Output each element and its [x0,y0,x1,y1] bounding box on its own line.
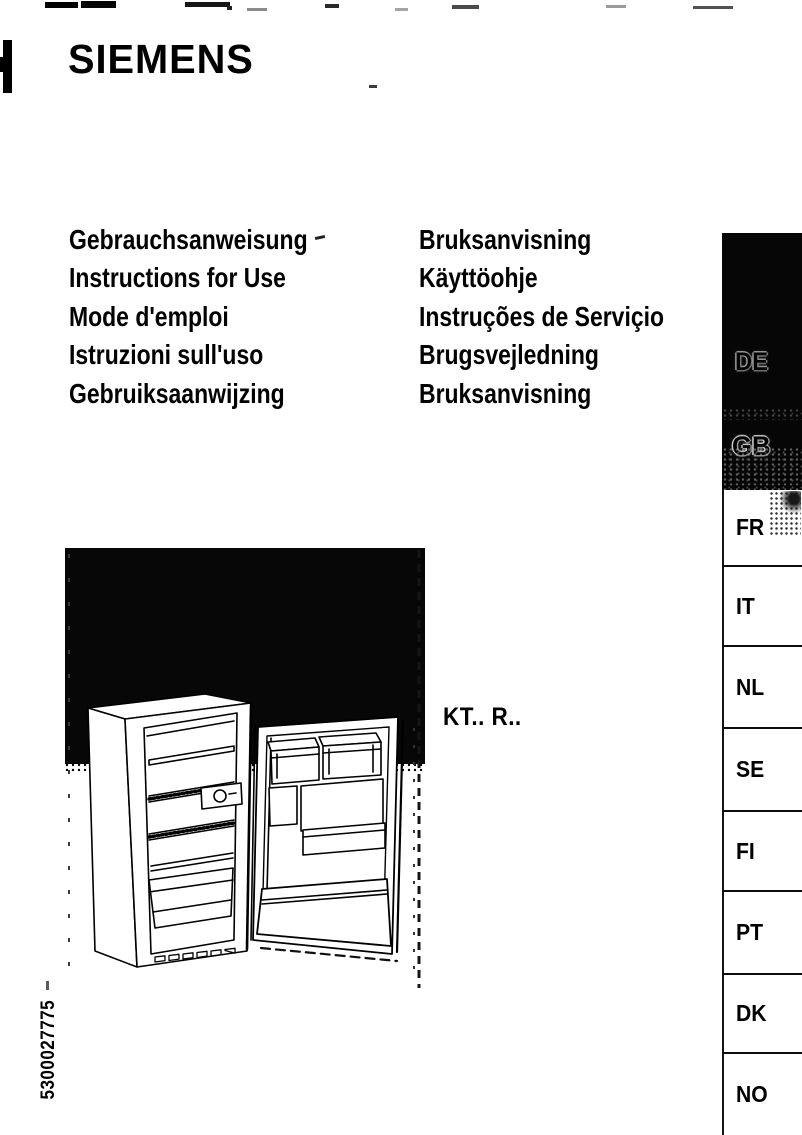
language-tab-dk: DK [722,973,802,1052]
doc-title: Instruções de Serviçio [419,298,664,336]
doc-title: Bruksanvisning [419,375,664,413]
doc-title: Gebrauchsanweisung [69,221,308,259]
scan-artifact [395,8,408,11]
language-tab-it: IT [722,565,802,645]
language-tab-label: FR [724,514,764,541]
part-number: 5300027775 [38,1001,58,1100]
model-code: KT.. R.. [443,703,522,732]
scan-noise [722,408,802,420]
language-tab-pt: PT [722,890,802,973]
product-illustration [65,548,425,992]
scan-noise [769,491,801,535]
scan-artifact [45,2,78,8]
doc-title: Käyttöohje [419,259,664,297]
scan-artifact [3,40,12,93]
doc-title: Instructions for Use [69,259,308,297]
scan-artifact [606,5,626,8]
language-tab-no: NO [722,1052,802,1135]
language-tab-label: NL [724,674,764,701]
language-tab-block-dark: DE GB [722,233,802,490]
scan-artifact [0,57,4,72]
language-tab-label: PT [724,919,763,946]
language-tab-se: SE [722,727,802,810]
language-tab-nl: NL [722,645,802,727]
scan-artifact [46,981,49,990]
brand-logo: SIEMENS [68,36,254,83]
language-tab-de: DE [735,348,768,377]
scan-artifact [325,4,339,8]
language-tab-label: SE [724,756,764,783]
scan-artifact [369,85,377,88]
doc-title: Gebruiksaanwijzing [69,375,308,413]
manual-cover-page: SIEMENS Gebrauchsanweisung Instructions … [0,0,802,1135]
language-tab-label: FI [724,838,755,865]
language-tab-label: DK [724,1000,767,1027]
scan-artifact [693,6,733,9]
language-tab-fr: FR [722,490,802,565]
doc-title: Istruzioni sull'uso [69,336,308,374]
scan-artifact [247,8,267,11]
scan-artifact [315,235,325,240]
title-list-right: Bruksanvisning Käyttöohje Instruções de … [419,221,664,413]
language-tab-index: FR IT NL SE FI PT DK NO [722,490,802,1135]
scan-artifact [185,2,230,7]
doc-title: Mode d'emploi [69,298,308,336]
doc-title: Bruksanvisning [419,221,664,259]
scan-artifact [81,1,116,8]
language-tab-label: IT [724,593,755,620]
doc-title: Brugsvejledning [419,336,664,374]
scan-artifact [452,5,479,9]
title-list-left: Gebrauchsanweisung Instructions for Use … [69,221,308,413]
language-tab-fi: FI [722,810,802,890]
language-tab-label: NO [724,1081,768,1108]
scan-artifact [227,6,232,10]
